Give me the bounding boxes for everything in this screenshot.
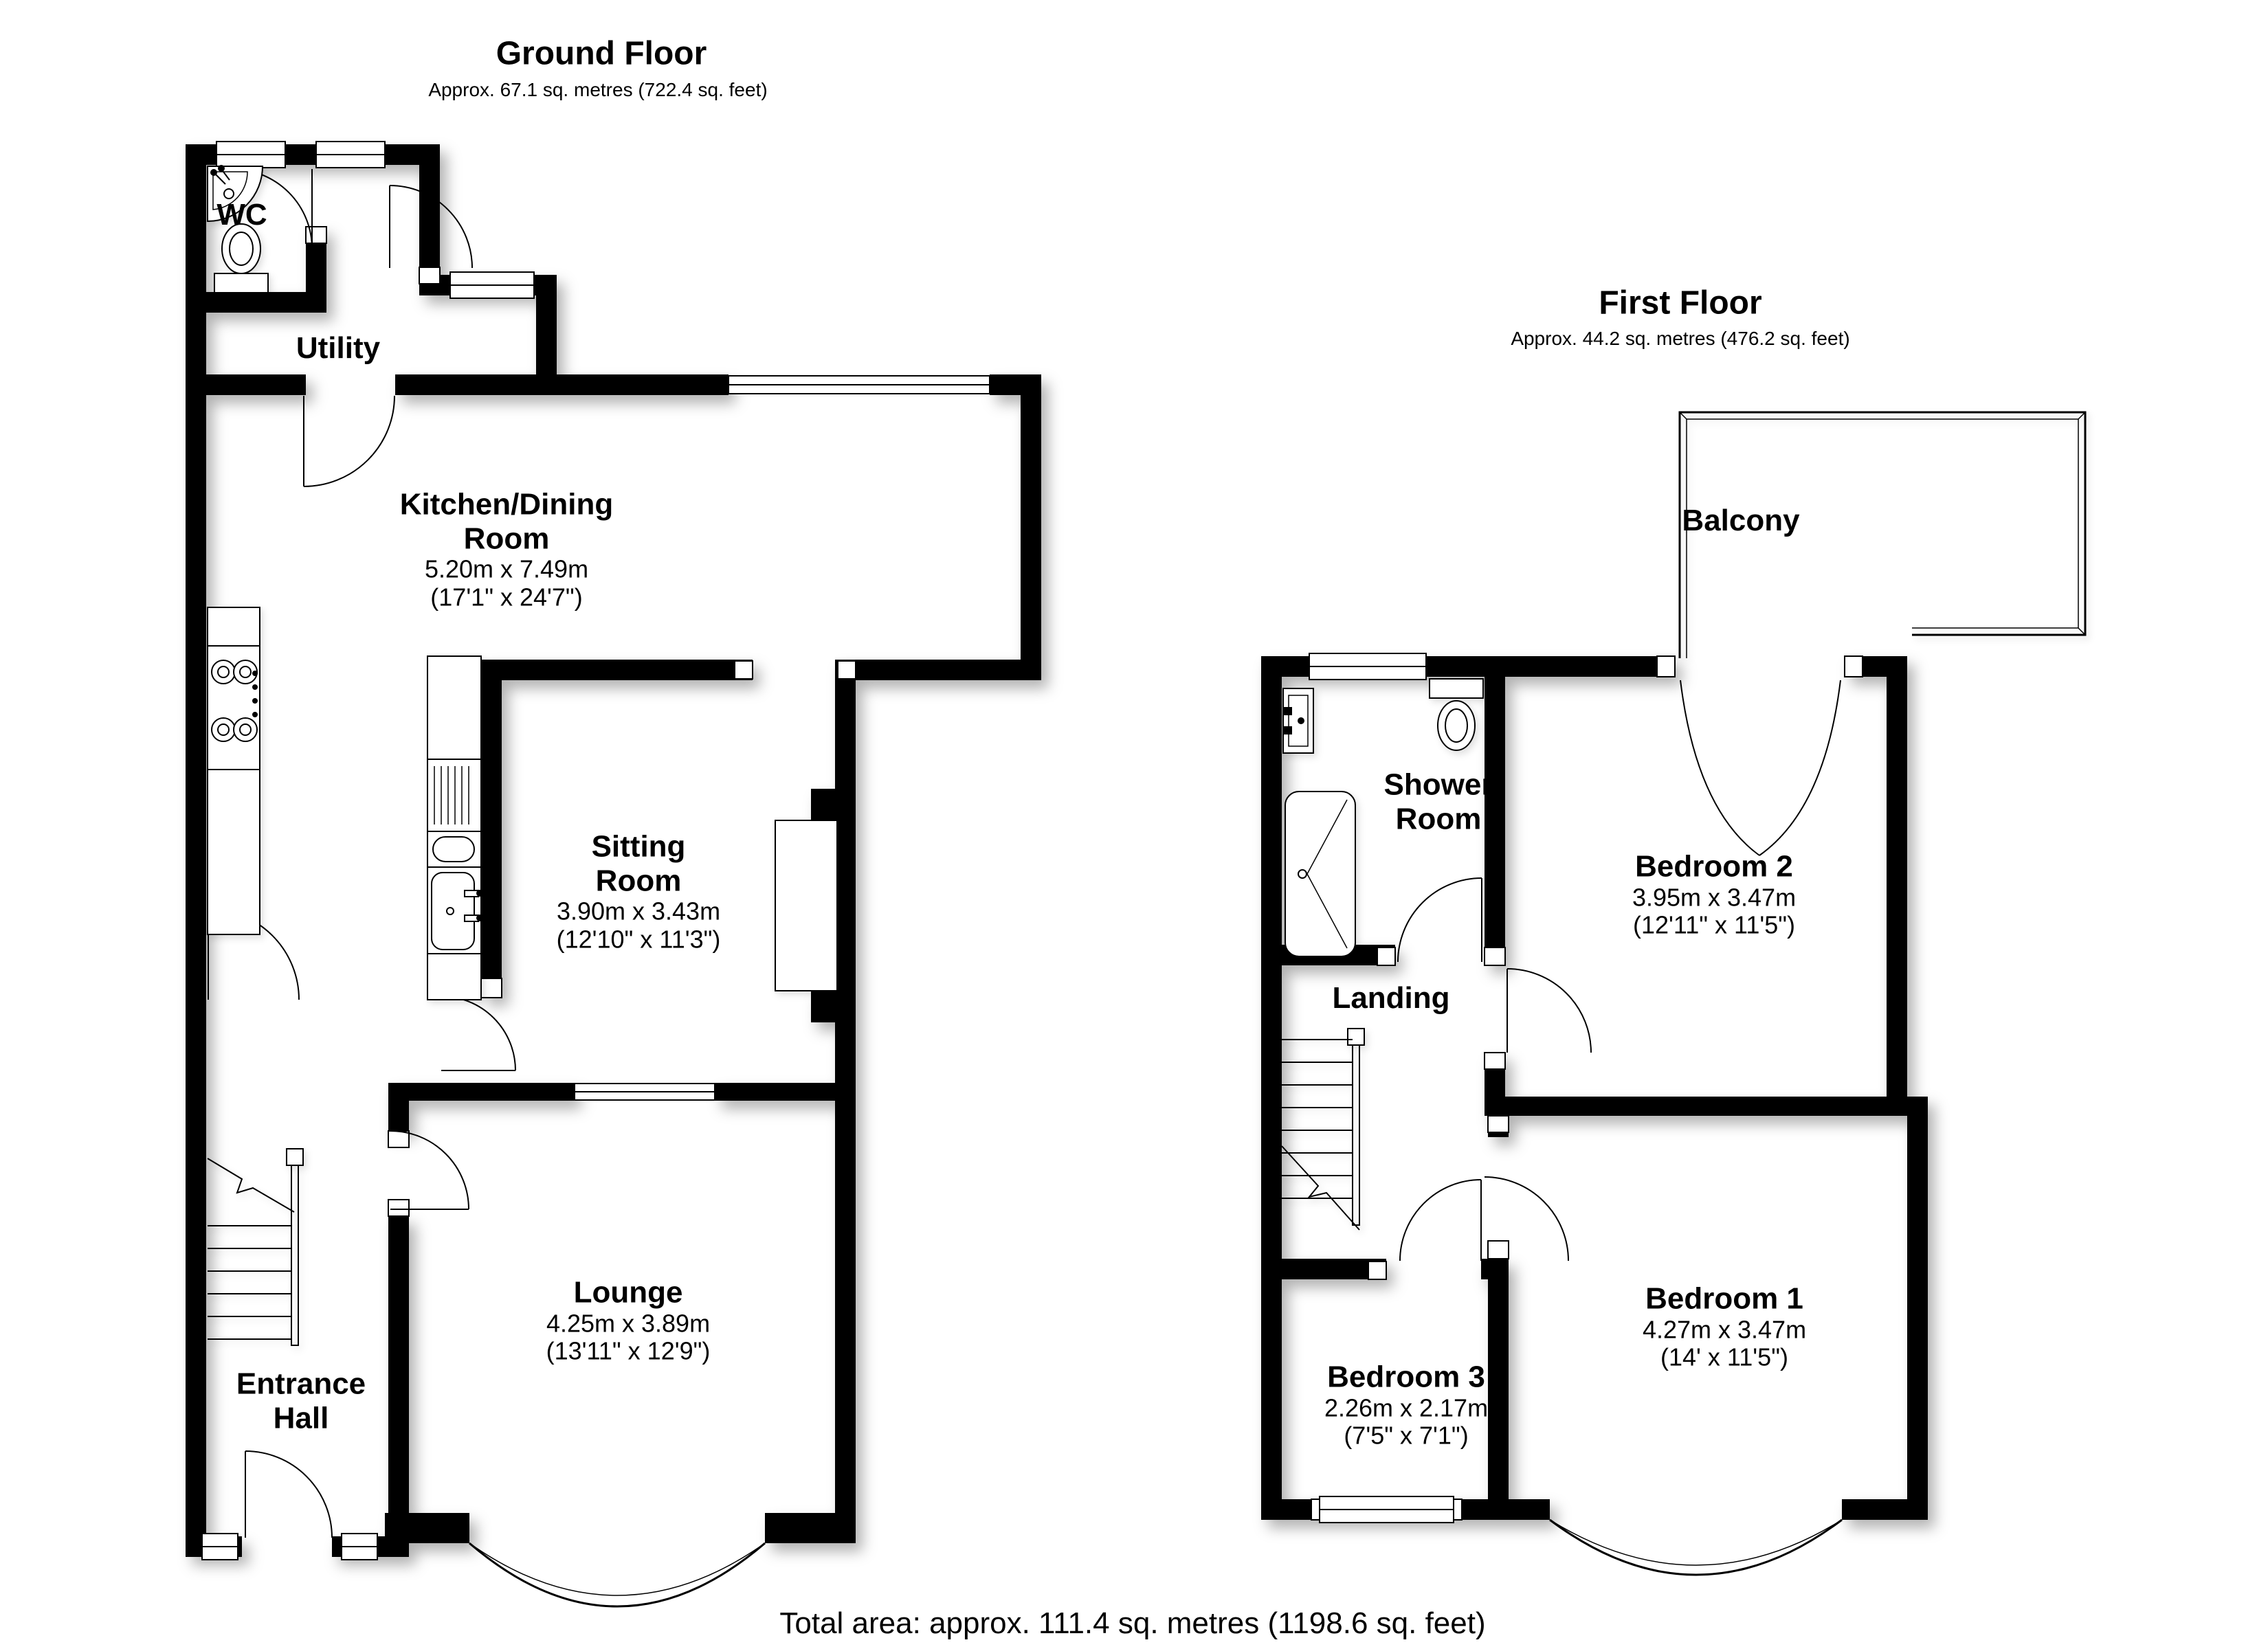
bay-window: [469, 1543, 765, 1606]
door-arc: [245, 1451, 332, 1538]
first-floor-title: First Floor: [1599, 284, 1761, 322]
room-label-landing: Landing: [1332, 981, 1449, 1016]
window: [342, 1534, 377, 1560]
door-arc: [304, 396, 394, 486]
first-floor-door-stops: [1368, 656, 1863, 1279]
bay-window: [1550, 1520, 1842, 1575]
toilet-icon: [1430, 679, 1483, 750]
room-label-kitchen-dining: Kitchen/Dining Room 5.20m x 7.49m (17'1"…: [359, 488, 654, 612]
window: [316, 142, 385, 168]
room-label-sitting-room: Sitting Room 3.90m x 3.43m (12'10" x 11'…: [549, 830, 728, 954]
door-arc: [1400, 1180, 1481, 1261]
room-label-shower-room: Shower Room: [1349, 767, 1528, 835]
room-label-bedroom-2: Bedroom 2 3.95m x 3.47m (12'11" x 11'5"): [1563, 849, 1865, 939]
door-arc: [1507, 969, 1591, 1053]
room-label-bedroom-1: Bedroom 1 4.27m x 3.47m (14' x 11'5"): [1573, 1281, 1876, 1371]
room-label-wc: WC: [216, 198, 267, 232]
room-label-bedroom-3: Bedroom 3 2.26m x 2.17m (7'5" x 7'1"): [1293, 1360, 1520, 1450]
total-area-text: Total area: approx. 111.4 sq. metres (11…: [779, 1606, 1485, 1641]
window: [729, 376, 990, 394]
door-arc: [1398, 878, 1482, 962]
shower-tray-icon: [1285, 792, 1355, 956]
window: [450, 272, 534, 298]
window: [202, 1534, 238, 1560]
ground-floor-title: Ground Floor: [496, 35, 707, 73]
room-label-balcony: Balcony: [1682, 504, 1799, 538]
window: [1311, 1496, 1462, 1523]
toilet-icon: [214, 224, 268, 293]
stairs-icon: [208, 1149, 303, 1345]
stairs-icon: [1282, 1029, 1364, 1230]
window: [216, 142, 285, 168]
hob-icon: [208, 607, 260, 934]
room-label-lounge: Lounge 4.25m x 3.89m (13'11" x 12'9"): [484, 1275, 772, 1365]
french-doors-arc: [1680, 680, 1841, 855]
room-label-entrance-hall: Entrance Hall: [215, 1367, 387, 1435]
window: [575, 1084, 715, 1100]
kitchen-sink-icon: [427, 656, 482, 1000]
fireplace-recess: [775, 820, 837, 991]
window: [1309, 653, 1426, 680]
first-floor-subtitle: Approx. 44.2 sq. metres (476.2 sq. feet): [1511, 328, 1849, 350]
door-arc: [441, 996, 515, 1070]
basin-icon: [1283, 688, 1313, 753]
room-label-utility: Utility: [296, 331, 380, 366]
ground-floor-subtitle: Approx. 67.1 sq. metres (722.4 sq. feet): [428, 79, 767, 101]
